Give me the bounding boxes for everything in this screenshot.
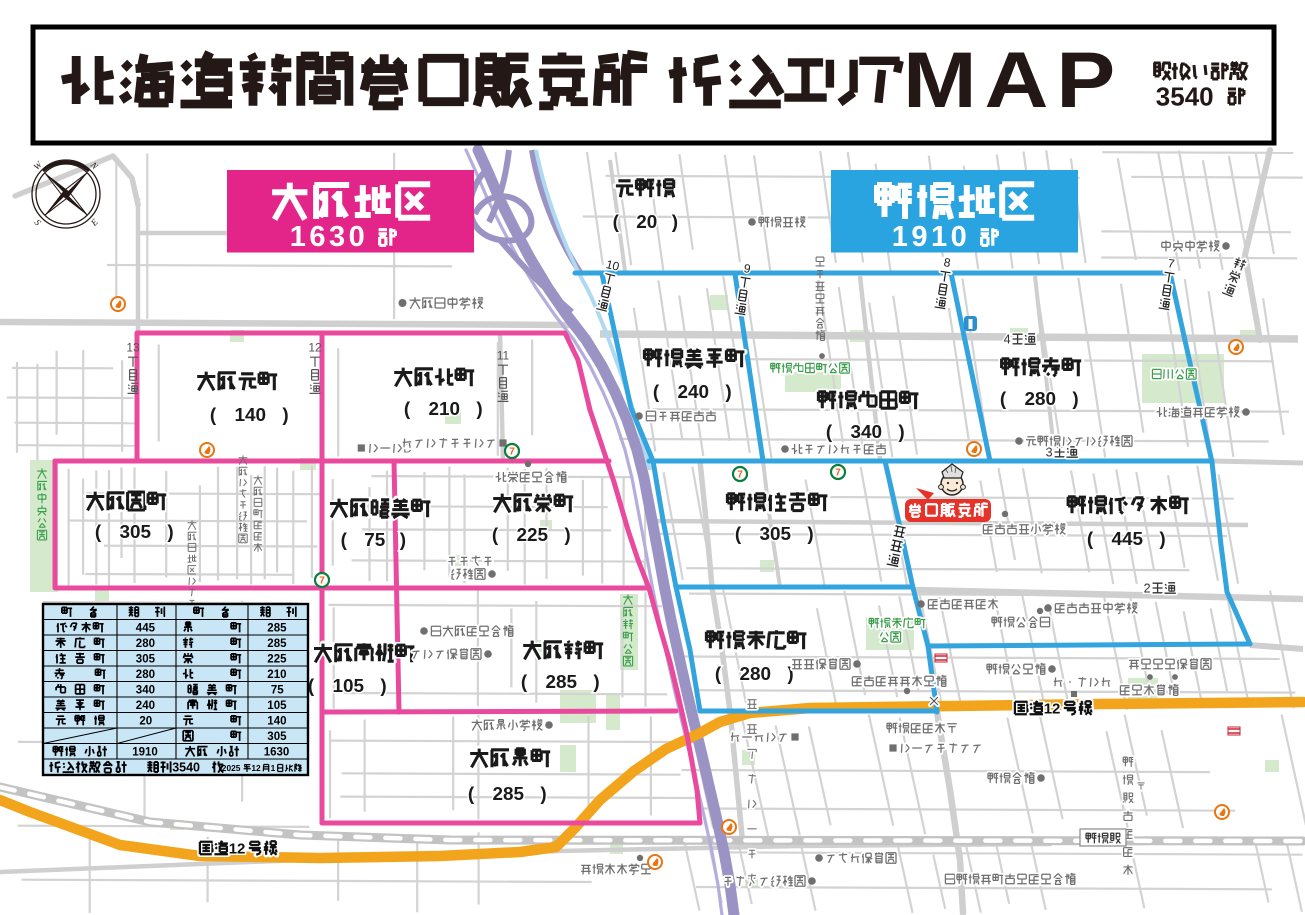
- svg-text:240: 240: [678, 382, 710, 403]
- svg-text:105: 105: [267, 700, 287, 712]
- svg-text:7: 7: [835, 468, 841, 479]
- svg-text:(: (: [521, 672, 528, 693]
- svg-text:1: 1: [271, 763, 276, 773]
- svg-text:2: 2: [1144, 582, 1151, 596]
- svg-text:280: 280: [136, 638, 155, 650]
- svg-text:305: 305: [267, 731, 287, 743]
- svg-text:75: 75: [364, 530, 385, 551]
- svg-text:): ): [476, 399, 482, 420]
- svg-text:3540: 3540: [1156, 81, 1214, 111]
- svg-text:): ): [282, 405, 288, 426]
- svg-text:75: 75: [271, 684, 284, 696]
- svg-text:225: 225: [517, 525, 549, 546]
- svg-text:7: 7: [509, 447, 515, 458]
- svg-text:240: 240: [136, 700, 155, 712]
- svg-text:(: (: [826, 422, 833, 443]
- svg-text:445: 445: [136, 622, 156, 634]
- svg-text:(: (: [1000, 389, 1007, 410]
- svg-text:20: 20: [636, 212, 657, 233]
- svg-text:305: 305: [760, 524, 792, 545]
- svg-text:): ): [1159, 529, 1165, 550]
- svg-text:(: (: [404, 399, 411, 420]
- svg-text:): ): [380, 676, 386, 697]
- svg-text:MAP: MAP: [903, 35, 1123, 124]
- svg-text:13: 13: [126, 341, 140, 355]
- svg-text:210: 210: [429, 399, 461, 420]
- svg-text:): ): [540, 784, 546, 805]
- svg-text:1630: 1630: [264, 746, 290, 758]
- svg-text:): ): [1072, 389, 1078, 410]
- svg-text:225: 225: [267, 653, 287, 665]
- svg-text:(: (: [735, 524, 742, 545]
- svg-text:(: (: [715, 664, 722, 685]
- svg-text:280: 280: [740, 664, 772, 685]
- svg-text:(: (: [492, 525, 499, 546]
- svg-text:140: 140: [235, 405, 267, 426]
- svg-text:305: 305: [136, 653, 156, 665]
- svg-text:305: 305: [120, 522, 152, 543]
- svg-text:(: (: [613, 212, 620, 233]
- svg-text:(: (: [468, 784, 475, 805]
- svg-text:): ): [725, 382, 731, 403]
- svg-text:12: 12: [229, 840, 246, 857]
- svg-text:11: 11: [497, 349, 510, 363]
- svg-text:210: 210: [267, 669, 286, 681]
- svg-text:1910: 1910: [892, 221, 971, 253]
- svg-text:2025: 2025: [222, 763, 241, 773]
- svg-text:): ): [564, 525, 570, 546]
- svg-text:(: (: [341, 530, 348, 551]
- svg-text:340: 340: [136, 684, 155, 696]
- svg-text:(: (: [95, 522, 102, 543]
- svg-text:20: 20: [139, 715, 152, 727]
- svg-text:): ): [898, 422, 904, 443]
- svg-text:285: 285: [493, 784, 525, 805]
- svg-text:12: 12: [308, 341, 322, 355]
- svg-text:12: 12: [1044, 700, 1061, 717]
- svg-text:140: 140: [267, 715, 286, 727]
- svg-text:285: 285: [267, 622, 287, 634]
- svg-text:1630: 1630: [290, 221, 369, 253]
- svg-text:1910: 1910: [132, 746, 158, 758]
- svg-text:): ): [807, 524, 813, 545]
- svg-text:12: 12: [251, 763, 261, 773]
- svg-text:3540: 3540: [172, 761, 200, 775]
- svg-text:4: 4: [1004, 333, 1011, 347]
- svg-text:): ): [672, 212, 678, 233]
- svg-text:280: 280: [136, 669, 155, 681]
- svg-text:280: 280: [1025, 389, 1057, 410]
- svg-text:): ): [400, 530, 406, 551]
- svg-text:105: 105: [333, 676, 365, 697]
- svg-text:285: 285: [546, 672, 578, 693]
- svg-text:445: 445: [1112, 529, 1144, 550]
- svg-text:): ): [167, 522, 173, 543]
- svg-text:(: (: [653, 382, 660, 403]
- svg-text:285: 285: [267, 638, 287, 650]
- svg-text:(: (: [1087, 529, 1094, 550]
- svg-text:7: 7: [737, 470, 743, 481]
- svg-text:7: 7: [319, 576, 325, 587]
- svg-text:): ): [593, 672, 599, 693]
- svg-text:(: (: [210, 405, 217, 426]
- svg-text:340: 340: [851, 422, 883, 443]
